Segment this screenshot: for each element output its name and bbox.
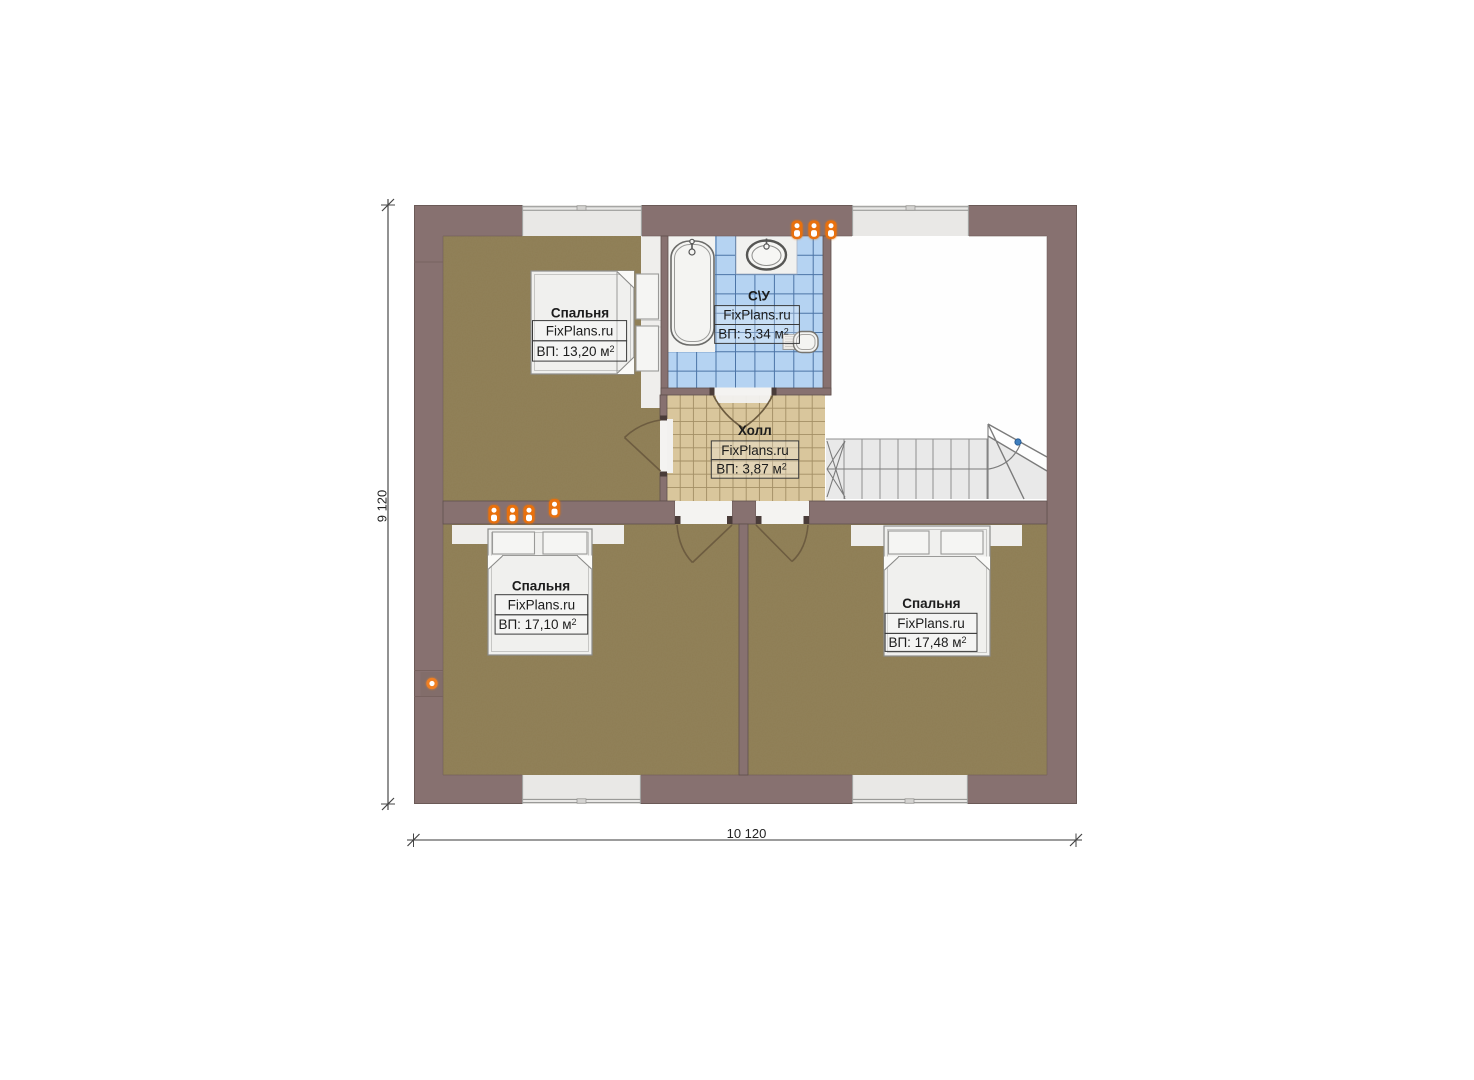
svg-text:FixPlans.ru: FixPlans.ru: [546, 324, 614, 339]
svg-text:С\У: С\У: [748, 289, 771, 304]
svg-text:Спальня: Спальня: [551, 306, 609, 321]
svg-text:Холл: Холл: [738, 423, 772, 438]
svg-text:FixPlans.ru: FixPlans.ru: [723, 308, 791, 323]
svg-text:FixPlans.ru: FixPlans.ru: [897, 616, 965, 631]
svg-text:Спальня: Спальня: [512, 579, 570, 594]
svg-text:ВП: 5,34 м2: ВП: 5,34 м2: [718, 327, 789, 342]
svg-text:10 120: 10 120: [727, 826, 767, 841]
svg-text:FixPlans.ru: FixPlans.ru: [508, 598, 576, 613]
svg-text:ВП: 3,87 м2: ВП: 3,87 м2: [716, 462, 787, 477]
svg-text:FixPlans.ru: FixPlans.ru: [721, 443, 789, 458]
svg-text:9 120: 9 120: [375, 490, 390, 523]
svg-text:ВП: 17,48 м2: ВП: 17,48 м2: [888, 635, 966, 650]
svg-text:Спальня: Спальня: [902, 596, 960, 611]
svg-text:ВП: 17,10 м2: ВП: 17,10 м2: [498, 617, 576, 632]
svg-text:ВП: 13,20 м2: ВП: 13,20 м2: [536, 344, 614, 359]
